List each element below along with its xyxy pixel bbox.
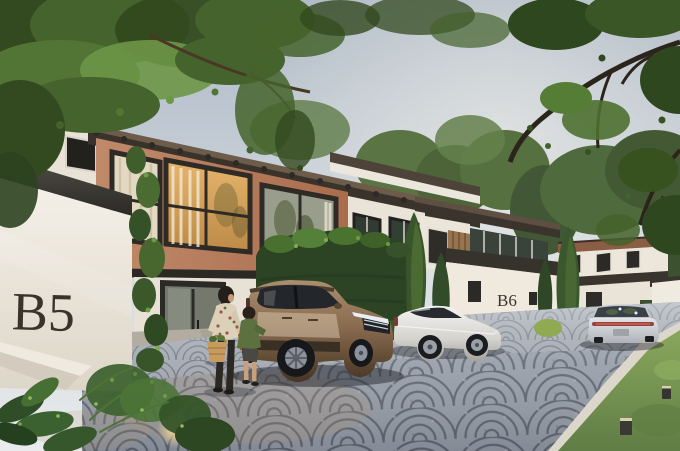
suv-body-reflection	[256, 312, 340, 338]
sedan2-wheel	[594, 337, 603, 343]
h3-window	[596, 252, 611, 273]
unit-b6-sign: B6	[497, 291, 517, 310]
sedan-taillight	[394, 317, 398, 326]
upper-window-amber	[166, 160, 250, 252]
child-hair	[243, 307, 256, 320]
render-scene: B6	[0, 0, 680, 451]
sunlit-shrub	[534, 319, 562, 337]
child-shorts	[242, 348, 258, 362]
h3-window	[626, 250, 640, 269]
h2-wall-lamp	[468, 281, 481, 302]
suv-mirror	[334, 303, 342, 309]
bollard-light	[620, 418, 632, 435]
h2-wall-plaque	[529, 292, 537, 305]
sedan2-plate	[613, 329, 629, 336]
sedan-headlight	[494, 330, 499, 335]
sedan2-wheel	[645, 336, 654, 342]
scene-canvas: B6	[0, 0, 680, 451]
unit-b5-sign: B5	[11, 281, 76, 343]
sedan2-rear-window	[594, 306, 649, 317]
bollard-light	[662, 386, 671, 399]
